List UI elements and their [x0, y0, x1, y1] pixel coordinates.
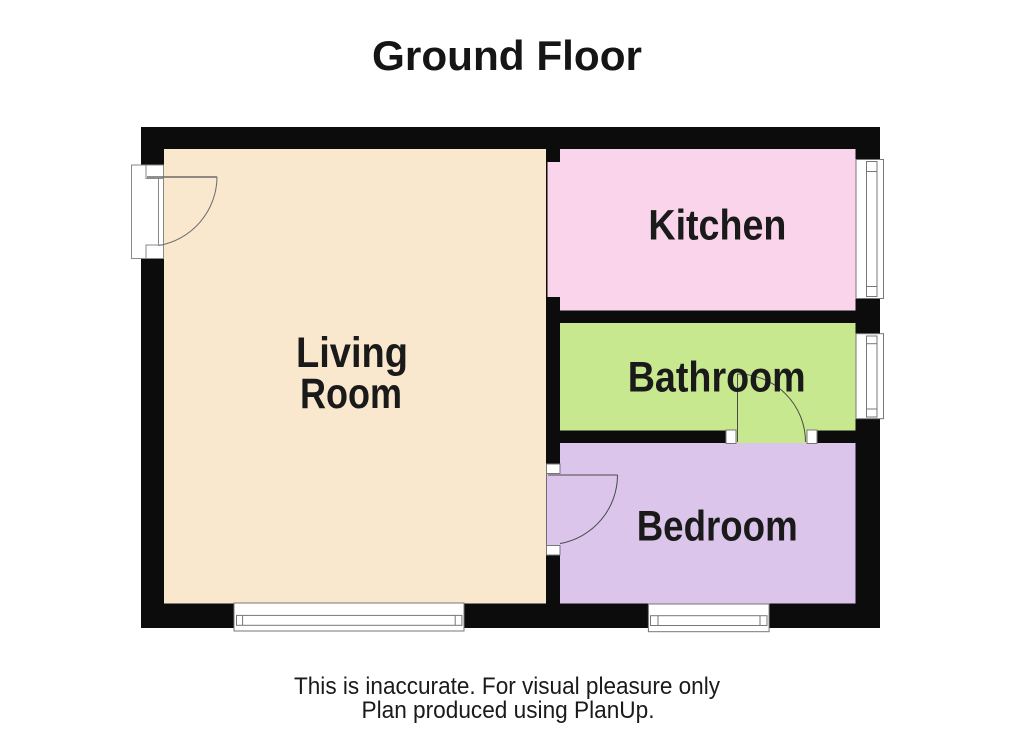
svg-text:Ground Floor: Ground Floor	[372, 32, 642, 79]
svg-text:Room: Room	[300, 370, 402, 418]
svg-text:Kitchen: Kitchen	[648, 202, 786, 250]
svg-text:Plan produced using PlanUp.: Plan produced using PlanUp.	[362, 697, 655, 724]
svg-text:Bathroom: Bathroom	[628, 353, 806, 401]
svg-text:Bedroom: Bedroom	[637, 502, 798, 550]
svg-text:This is inaccurate. For visual: This is inaccurate. For visual pleasure …	[294, 673, 720, 700]
